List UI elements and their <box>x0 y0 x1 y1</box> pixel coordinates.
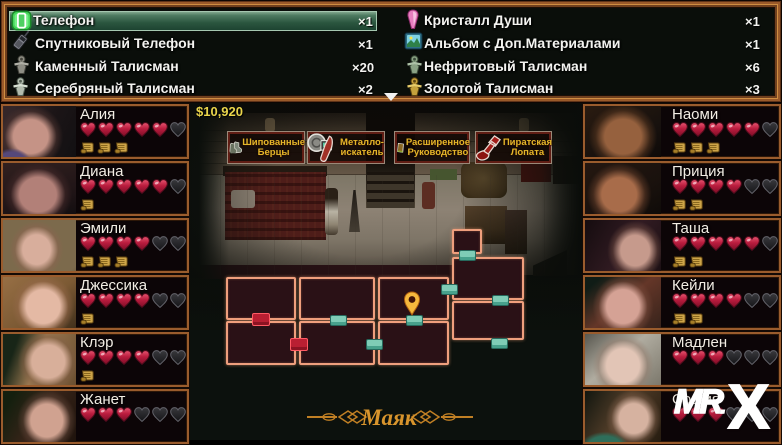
svg-text:Маяк: Маяк <box>360 405 417 430</box>
